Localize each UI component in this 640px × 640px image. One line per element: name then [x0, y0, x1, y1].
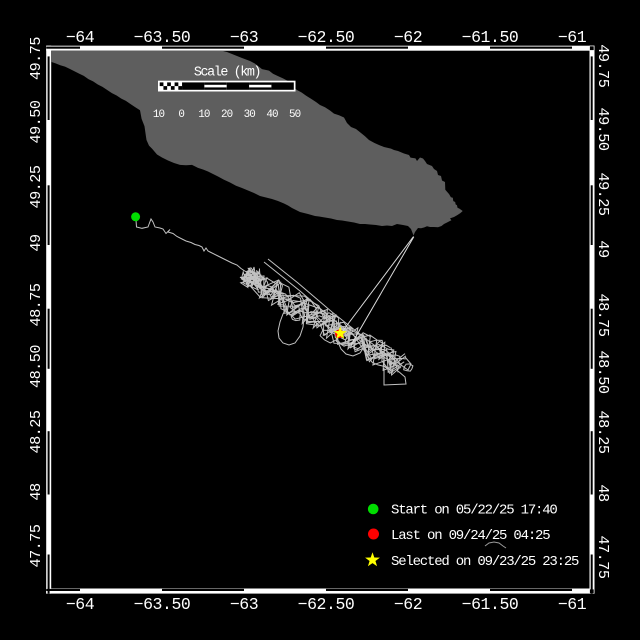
- svg-text:Start on 05/22/25 17:40: Start on 05/22/25 17:40: [391, 503, 557, 519]
- svg-text:−61: −61: [558, 28, 587, 47]
- svg-text:47.75: 47.75: [594, 535, 612, 578]
- svg-text:−62: −62: [394, 595, 422, 614]
- svg-text:20: 20: [221, 109, 233, 121]
- svg-text:−64: −64: [66, 28, 95, 47]
- svg-text:−63.50: −63.50: [134, 595, 191, 614]
- svg-text:−62.50: −62.50: [298, 28, 355, 47]
- svg-text:−61: −61: [558, 595, 587, 614]
- svg-text:49.50: 49.50: [594, 107, 612, 150]
- svg-text:30: 30: [244, 109, 256, 121]
- svg-text:48.75: 48.75: [594, 293, 612, 336]
- svg-text:10: 10: [198, 109, 210, 121]
- svg-text:−61.50: −61.50: [462, 595, 519, 614]
- svg-text:48: 48: [27, 483, 45, 501]
- svg-text:−63: −63: [230, 595, 258, 614]
- svg-text:48.50: 48.50: [594, 350, 612, 393]
- svg-text:Last on 09/24/25 04:25: Last on 09/24/25 04:25: [391, 528, 550, 544]
- svg-text:−63: −63: [230, 28, 258, 47]
- svg-text:−62: −62: [394, 28, 422, 47]
- svg-text:49.25: 49.25: [594, 172, 612, 215]
- svg-text:Scale (km): Scale (km): [194, 66, 260, 81]
- svg-text:48: 48: [594, 484, 612, 502]
- svg-text:40: 40: [266, 109, 278, 121]
- svg-text:−61.50: −61.50: [462, 28, 519, 47]
- svg-text:48.75: 48.75: [27, 283, 45, 326]
- svg-text:49.75: 49.75: [594, 44, 612, 87]
- svg-text:−63.50: −63.50: [134, 28, 191, 47]
- svg-text:Selected on 09/23/25 23:25: Selected on 09/23/25 23:25: [391, 554, 579, 570]
- svg-text:−62.50: −62.50: [298, 595, 355, 614]
- svg-text:47.75: 47.75: [27, 524, 45, 567]
- svg-text:49: 49: [27, 234, 45, 252]
- svg-text:0: 0: [178, 109, 184, 121]
- svg-text:49.25: 49.25: [27, 165, 45, 208]
- svg-text:−64: −64: [66, 595, 95, 614]
- svg-text:50: 50: [289, 109, 301, 121]
- svg-text:10: 10: [153, 109, 165, 121]
- svg-text:48.25: 48.25: [594, 410, 612, 453]
- svg-text:49: 49: [594, 240, 612, 258]
- svg-text:48.25: 48.25: [27, 410, 45, 453]
- svg-text:49.50: 49.50: [27, 100, 45, 143]
- svg-text:49.75: 49.75: [27, 37, 45, 80]
- svg-text:48.50: 48.50: [27, 345, 45, 388]
